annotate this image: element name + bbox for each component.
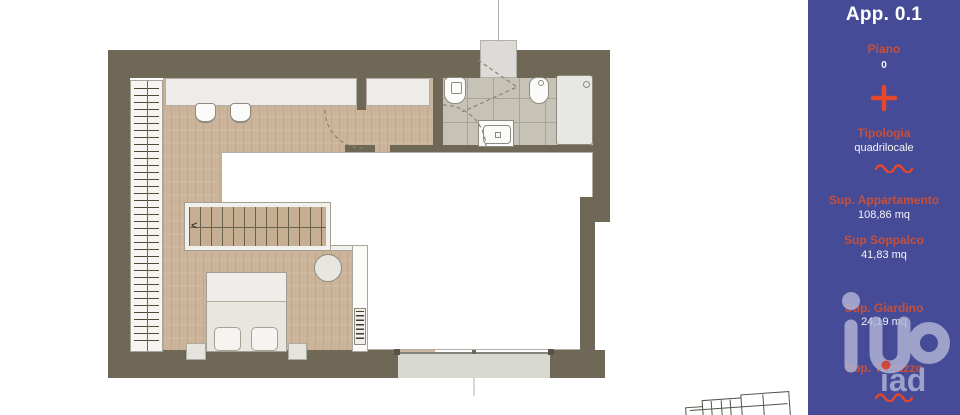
door-swing-entry: [462, 60, 517, 112]
iad-logo-watermark: iad: [836, 281, 951, 401]
floorplan-listing-page: <: [0, 0, 960, 415]
apartment-area-value: 108,86 mq: [808, 209, 960, 221]
apartment-area-label: Sup. Appartamento: [808, 193, 960, 207]
logo-o-shape: [914, 328, 944, 358]
wave-divider-icon: [874, 163, 914, 173]
plan-annotations: [0, 0, 810, 415]
floor-label: Piano: [808, 42, 960, 56]
plus-icon: [870, 84, 898, 112]
site-plan-thumbnail: [685, 392, 791, 415]
logo-u-shape: [876, 323, 904, 367]
typology-label: Tipologia: [808, 126, 960, 140]
door-swing-living: [325, 110, 363, 148]
floorplan: <: [0, 0, 810, 415]
floor-value: 0: [808, 60, 960, 71]
loft-area-value: 41,83 mq: [808, 249, 960, 261]
logo-red-dot: [882, 361, 891, 370]
typology-value: quadrilocale: [808, 142, 960, 154]
logo-i-dot: [842, 292, 860, 310]
apartment-title: App. 0.1: [808, 4, 960, 26]
loft-area-label: Sup Soppalco: [808, 233, 960, 247]
